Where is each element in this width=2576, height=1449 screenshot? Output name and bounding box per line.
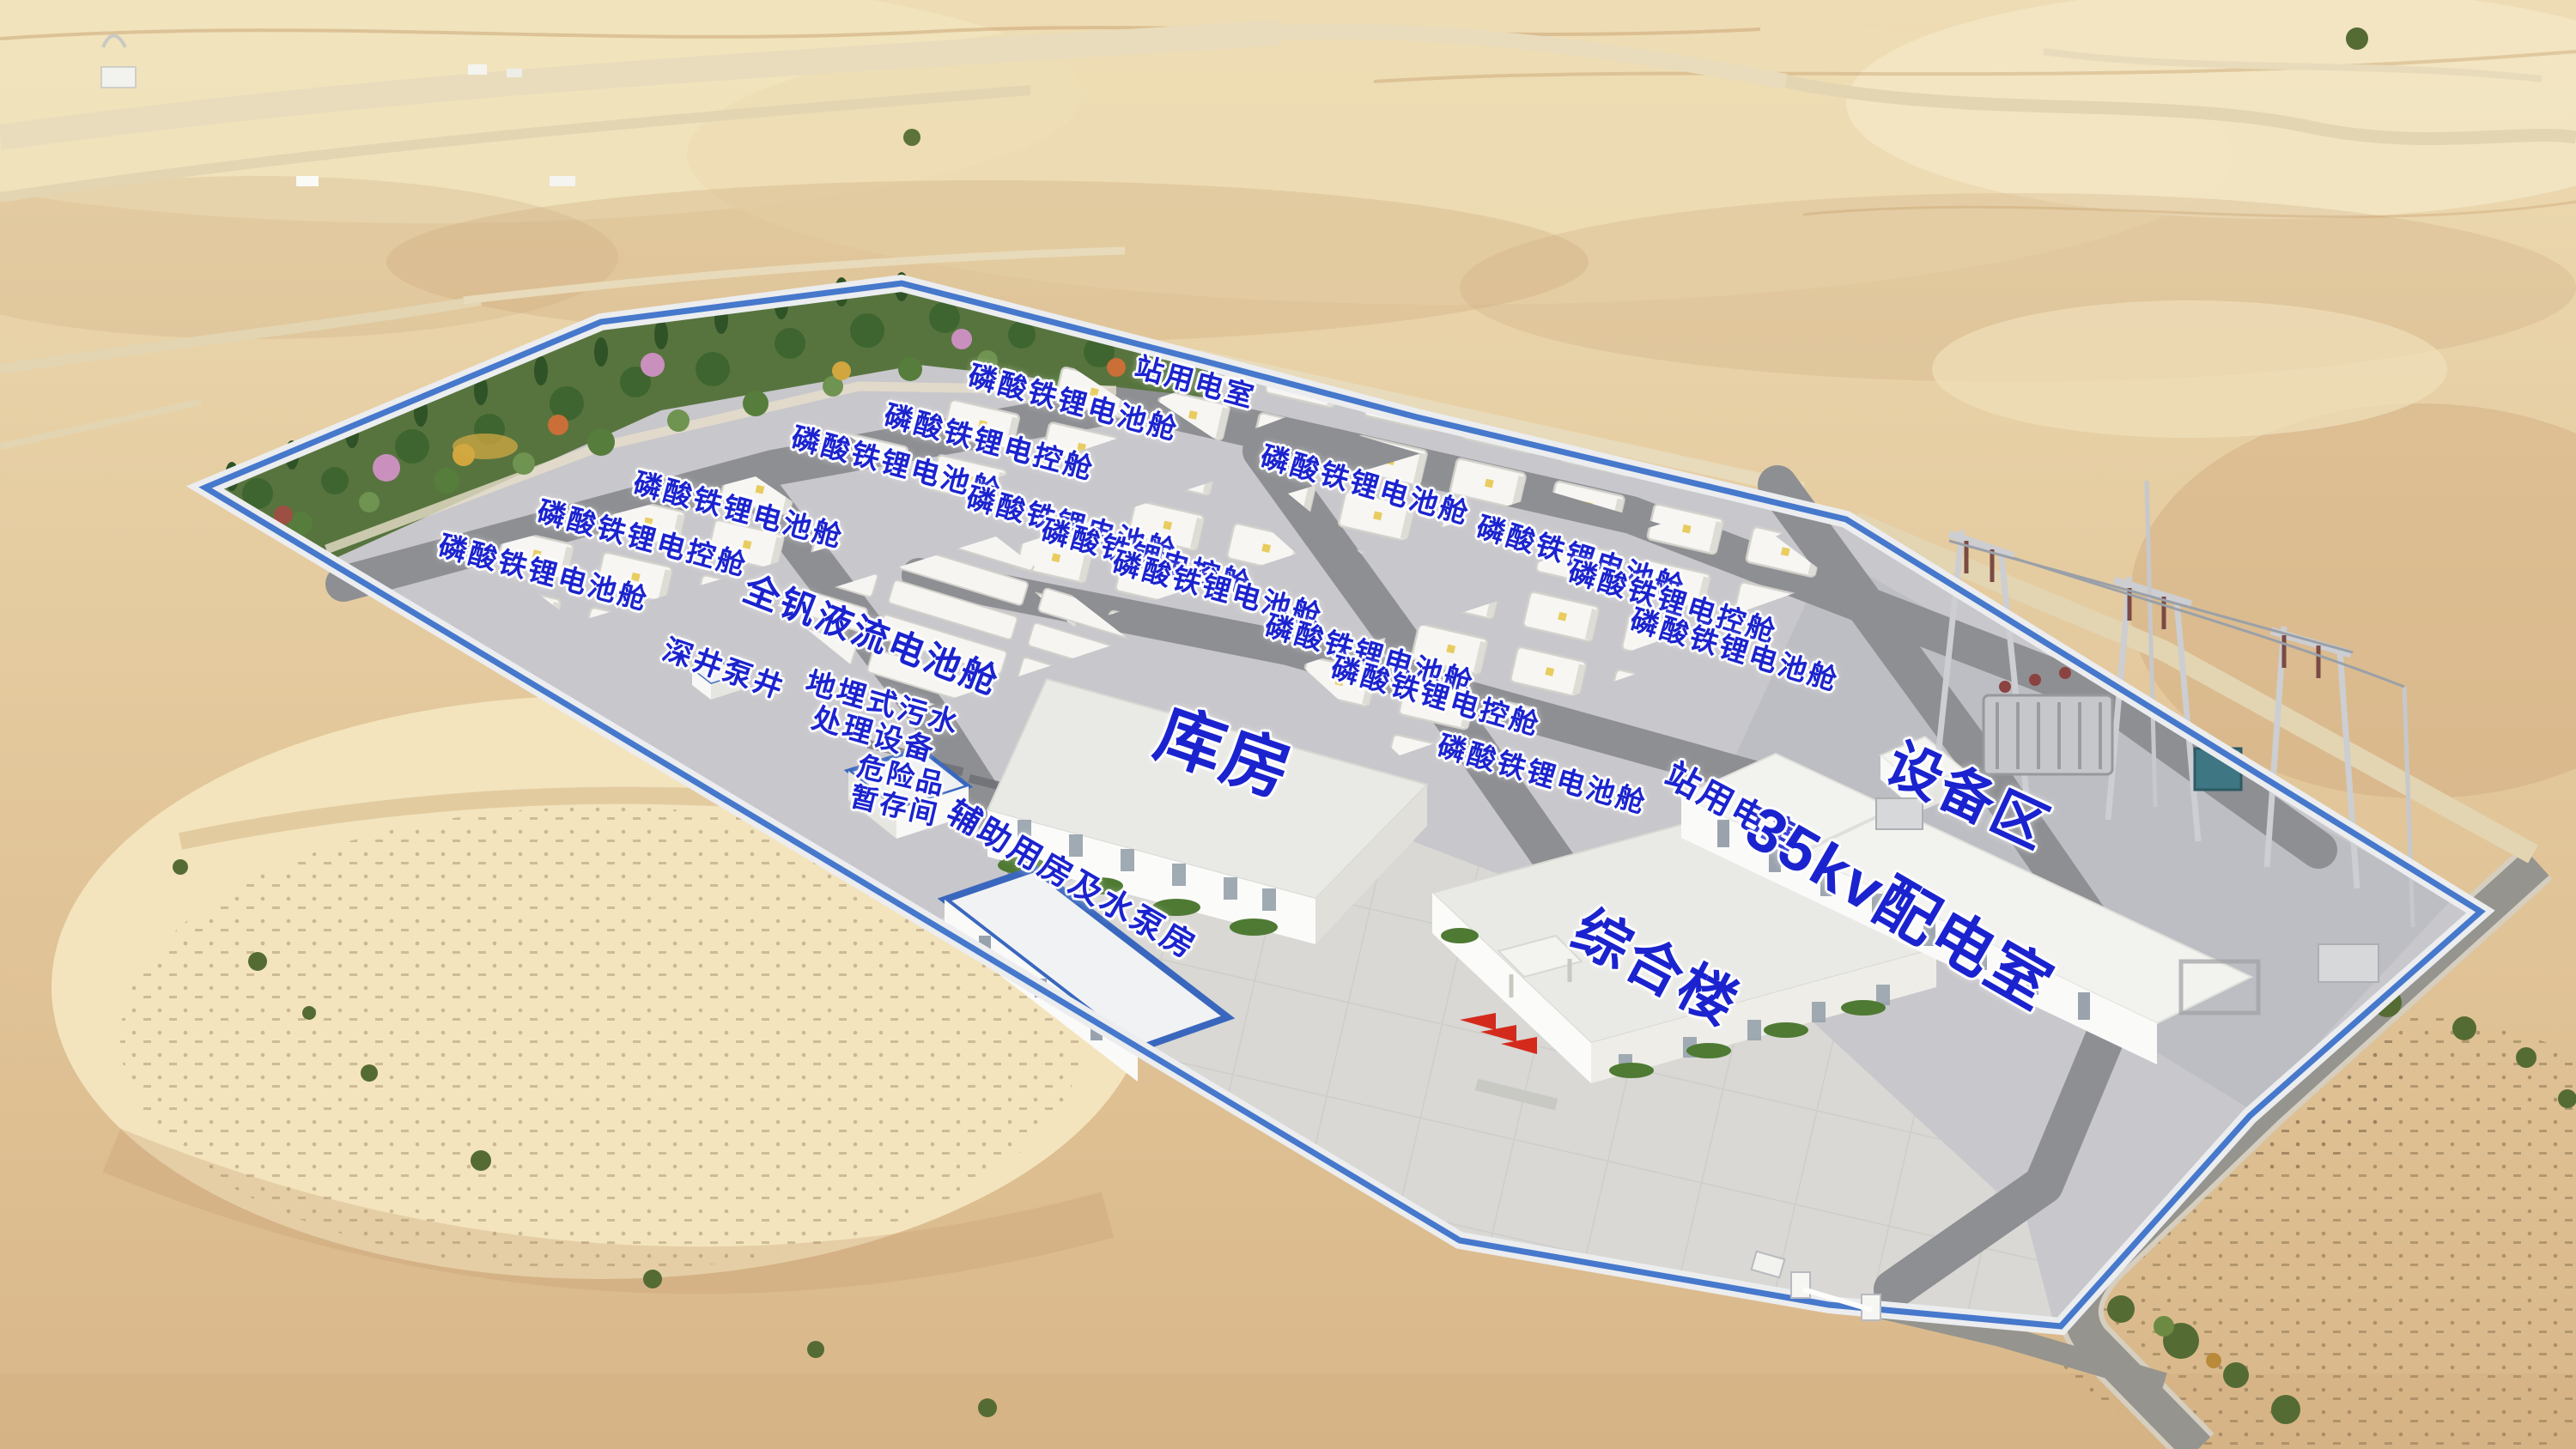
terrain-graphic [0,0,2576,1449]
aerial-render: 磷酸铁锂电池舱磷酸铁锂电控舱磷酸铁锂电池舱磷酸铁锂电池舱磷酸铁锂电控舱磷酸铁锂电… [0,0,2576,1449]
